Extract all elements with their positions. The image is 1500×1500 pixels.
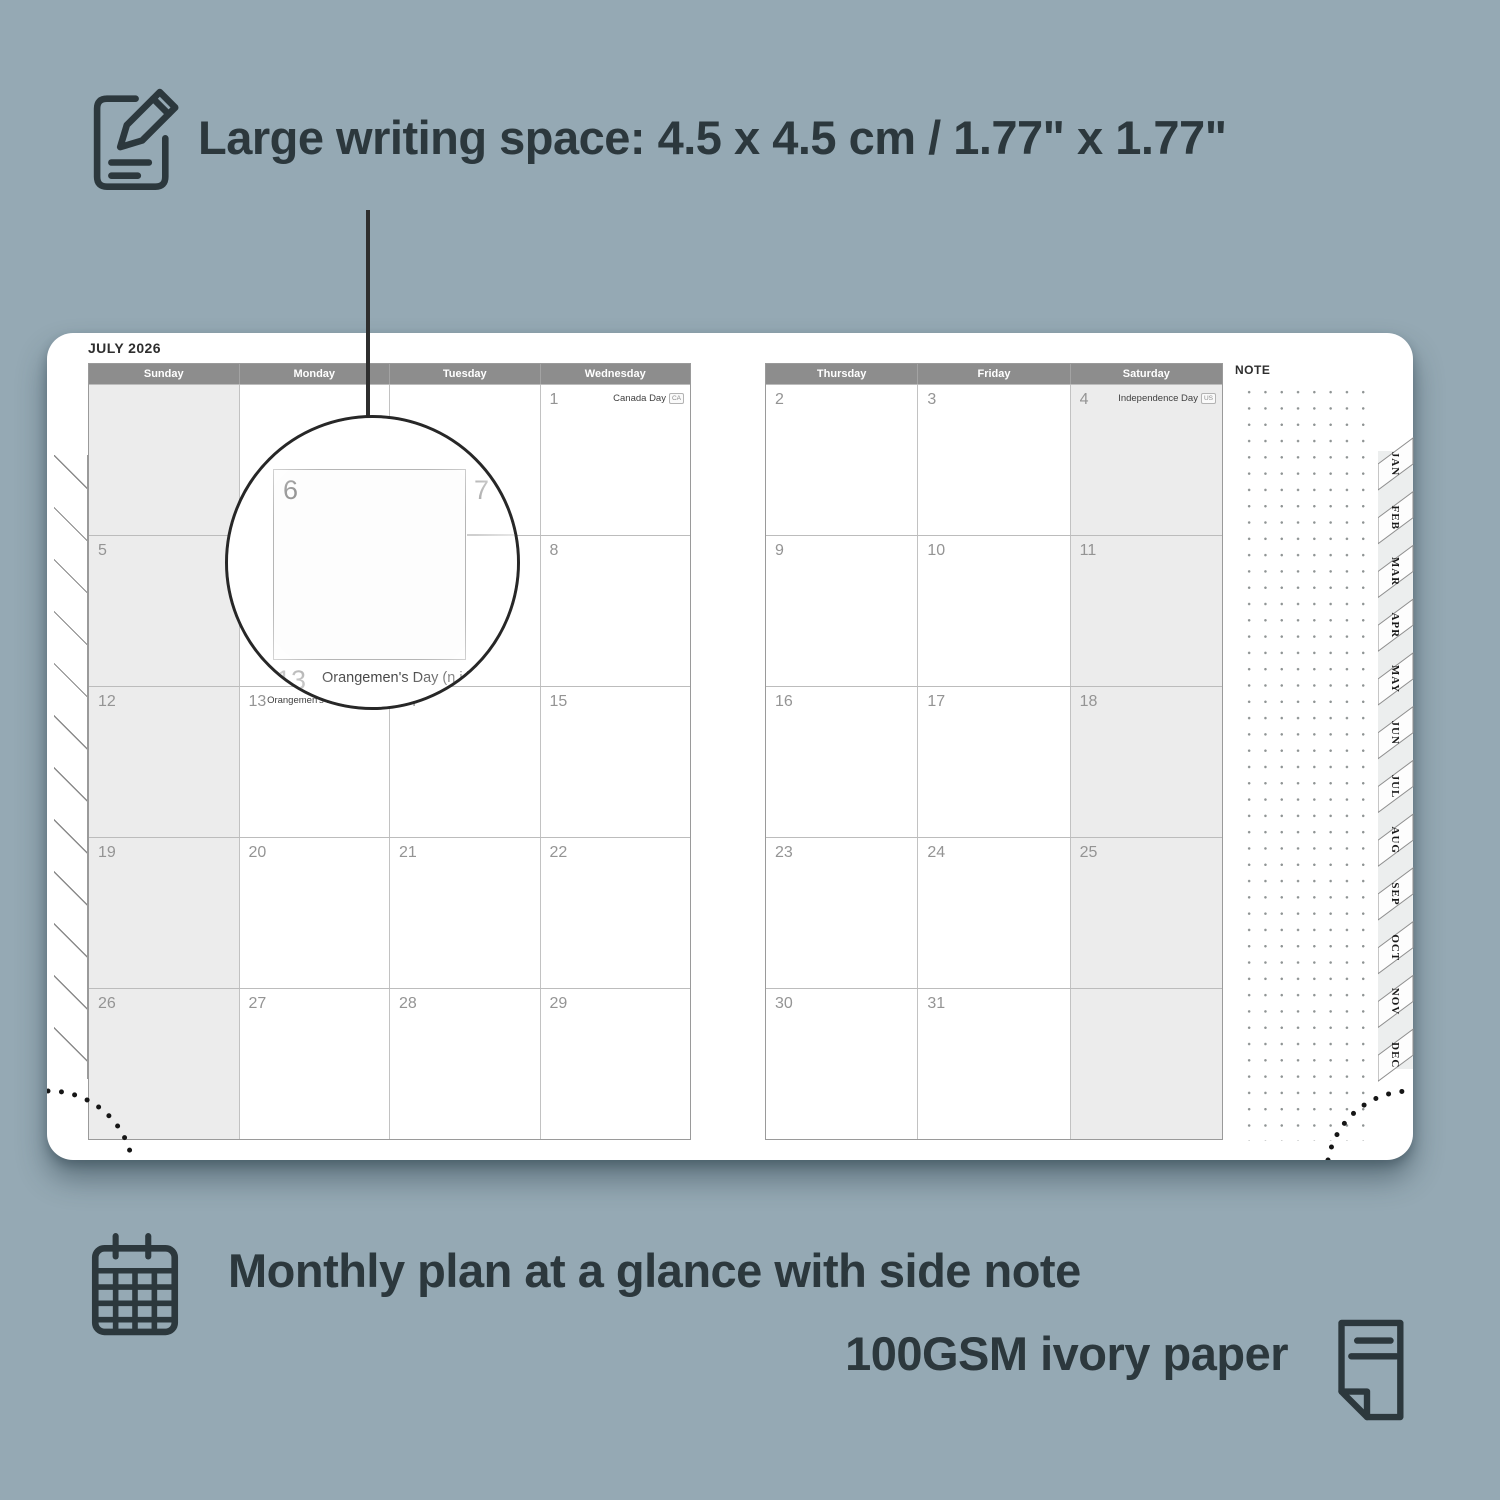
day-number: 17 [927,693,945,711]
day-number: 12 [98,693,116,711]
day-number: 30 [775,995,793,1013]
weekday-header: Saturday [1070,364,1222,384]
month-tab-label: NOV [1389,988,1401,1015]
calendar-week-row: 3031 [766,988,1222,1139]
month-tab-label: DEC [1389,1042,1401,1068]
feature-caption-paper: 100GSM ivory paper [845,1326,1288,1381]
month-tab-label: AUG [1389,827,1401,854]
day-cell: 17 [917,687,1069,837]
calendar-week-row: 232425 [766,837,1222,988]
day-cell: 26 [89,989,239,1139]
calendar-week-row: 161718 [766,686,1222,837]
calendar-grid-icon [84,1230,186,1338]
country-badge: US [1201,393,1216,404]
month-tab-label: APR [1389,612,1401,638]
weekday-header: Tuesday [389,364,540,384]
day-number: 8 [550,542,559,560]
day-cell: 25 [1070,838,1222,988]
day-cell: 5 [89,536,239,686]
day-number: 23 [775,844,793,862]
day-cell [1070,989,1222,1139]
day-cell: 9 [766,536,917,686]
day-number: 2 [775,391,784,409]
calendar-week-row: 91011 [766,535,1222,686]
paper-sheet-icon [1318,1314,1416,1426]
weekday-header: Friday [917,364,1069,384]
day-number: 13 [249,693,267,711]
day-number: 31 [927,995,945,1013]
calendar-week-row: 26272829 [89,988,690,1139]
weekday-header-row: ThursdayFridaySaturday [766,364,1222,384]
month-tab-label: JUN [1389,721,1401,745]
day-number: 28 [399,995,417,1013]
day-cell: 1Canada DayCA [540,385,691,535]
day-number: 3 [927,391,936,409]
day-cell: 28 [389,989,540,1139]
country-badge: CA [669,393,684,404]
day-number: 4 [1080,391,1089,409]
day-number: 18 [1080,693,1098,711]
day-cell: 10 [917,536,1069,686]
weekday-header: Sunday [89,364,239,384]
month-tab-label: MAY [1389,665,1401,693]
day-number: 27 [249,995,267,1013]
month-tab-label: FEB [1389,506,1401,530]
day-number: 22 [550,844,568,862]
note-section: NOTE [1233,363,1374,1143]
magnifier-glass-fade [228,418,517,707]
weekday-header: Wednesday [540,364,691,384]
calendar-week-row: 234Independence DayUS [766,384,1222,535]
notepad-pencil-icon [85,76,195,194]
day-cell: 27 [239,989,390,1139]
country-badge: UK [475,671,496,686]
day-number: 20 [249,844,267,862]
day-cell: 16 [766,687,917,837]
holiday-name: Canada Day [613,393,666,404]
day-cell: 18 [1070,687,1222,837]
holiday-label: Canada DayCA [613,393,684,404]
day-cell: 29 [540,989,691,1139]
month-tab-label: MAR [1389,557,1401,586]
calendar-week-row: 19202122 [89,837,690,988]
callout-leader-line [366,210,370,420]
product-image: { "colors": { "background": "#95a9b4", "… [0,0,1500,1500]
magnifier-circle: 6 7 13 Orangemen's Day (n.i.) UK [225,415,520,710]
day-cell [89,385,239,535]
day-number: 9 [775,542,784,560]
month-tab-label: OCT [1389,934,1401,961]
day-number: 29 [550,995,568,1013]
day-cell: 23 [766,838,917,988]
day-cell: 11 [1070,536,1222,686]
day-number: 10 [927,542,945,560]
day-cell: 31 [917,989,1069,1139]
day-number: 24 [927,844,945,862]
day-cell: 3 [917,385,1069,535]
weekday-header-row: SundayMondayTuesdayWednesday [89,364,690,384]
calendar-right-page: ThursdayFridaySaturday234Independence Da… [765,363,1223,1140]
holiday-label: Independence DayUS [1118,393,1216,404]
month-tab-label: SEP [1389,882,1401,905]
day-cell: 24 [917,838,1069,988]
day-number: 16 [775,693,793,711]
month-tab-index: JANFEBMARAPRMAYJUNJULAUGSEPOCTNOVDEC [1378,437,1414,1088]
month-tab-label: JUL [1389,775,1401,799]
day-cell: 20 [239,838,390,988]
day-cell: 21 [389,838,540,988]
feature-caption-monthly-plan: Monthly plan at a glance with side note [228,1243,1081,1298]
feature-caption-writing-space: Large writing space: 4.5 x 4.5 cm / 1.77… [198,110,1226,165]
planner-spread: JULY 2026 SundayMondayTuesdayWednesday1C… [47,333,1413,1160]
month-title: JULY 2026 [88,340,161,356]
day-number: 11 [1080,542,1097,560]
note-label: NOTE [1235,363,1270,377]
day-cell: 14 [389,687,540,837]
day-cell: 8 [540,536,691,686]
day-cell: 2 [766,385,917,535]
day-cell: 15 [540,687,691,837]
day-cell: 12 [89,687,239,837]
day-cell: 22 [540,838,691,988]
day-cell: 19 [89,838,239,988]
day-number: 19 [98,844,116,862]
day-cell: 30 [766,989,917,1139]
day-number: 25 [1080,844,1098,862]
day-number: 5 [98,542,107,560]
left-page-tab-edges [54,455,88,1079]
month-tab-label: JAN [1389,452,1401,476]
day-cell: 4Independence DayUS [1070,385,1222,535]
day-number: 1 [550,391,559,409]
dot-grid [1237,378,1368,1141]
weekday-header: Thursday [766,364,917,384]
day-number: 21 [399,844,417,862]
holiday-name: Independence Day [1118,393,1198,404]
day-number: 15 [550,693,568,711]
day-number: 26 [98,995,116,1013]
